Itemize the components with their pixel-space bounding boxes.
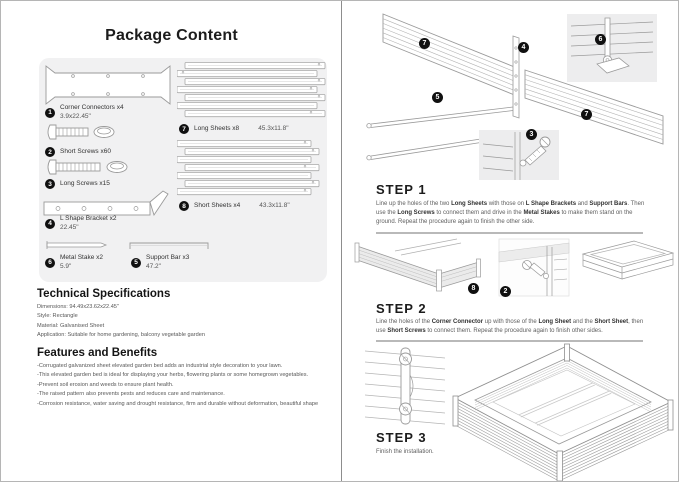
item-label: Support Bar x3 — [146, 254, 189, 263]
part-ref-badge: 3 — [526, 129, 537, 140]
item-label: L Shape Bracket x2 — [60, 215, 117, 224]
step1-assembly-illustration — [347, 4, 677, 180]
item-size: 5.9" — [60, 263, 103, 272]
spec-line: Style: Rectangle — [37, 312, 205, 321]
manual-page: Package Content 1 Corner Connectors x4 3… — [0, 0, 679, 482]
item-size: 3.9x22.45" — [60, 113, 124, 122]
short-sheets-illustration — [177, 140, 323, 197]
long-sheets-illustration — [177, 62, 327, 119]
step1-text: Line up the holes of the two Long Sheets… — [376, 200, 648, 227]
part-ref-badge: 8 — [468, 283, 479, 294]
step3-heading: STEP 3 — [376, 430, 427, 445]
item-number-badge: 4 — [45, 219, 55, 229]
item-number-badge: 8 — [179, 201, 189, 211]
section-divider — [376, 232, 643, 234]
corner-connector-illustration — [43, 64, 173, 106]
package-item: 5 Support Bar x3 47.2" — [131, 254, 189, 271]
step1-heading: STEP 1 — [376, 182, 427, 197]
long-screw-inset — [479, 130, 559, 180]
part-ref-badge: 7 — [419, 38, 430, 49]
package-item: 8 Short Sheets x4 43.3x11.8" — [179, 201, 290, 211]
package-content-box: 1 Corner Connectors x4 3.9x22.45" 2 Shor… — [39, 58, 327, 282]
specs-lines: Dimensions: 94.49x23.62x22.45" Style: Re… — [37, 303, 205, 341]
step2-assembly-illustration — [351, 238, 677, 298]
item-label: Metal Stake x2 — [60, 254, 103, 263]
spec-line: Application: Suitable for home gardening… — [37, 331, 205, 340]
item-label: Short Screws x60 — [60, 148, 111, 157]
item-size: 22.45" — [60, 224, 117, 233]
feature-line: -Corrugated galvanized sheet elevated ga… — [37, 362, 318, 371]
item-number-badge: 2 — [45, 147, 55, 157]
package-item: 3 Long Screws x15 — [45, 179, 110, 189]
part-ref-badge: 4 — [518, 42, 529, 53]
item-size: 45.3x11.8" — [258, 125, 288, 134]
step3-corner-detail — [363, 345, 447, 427]
item-number-badge: 3 — [45, 179, 55, 189]
part-ref-badge: 5 — [432, 92, 443, 103]
l-shape-bracket-illustration — [41, 190, 175, 218]
step2-text: Line the holes of the Corner Connector u… — [376, 318, 648, 336]
item-label: Long Screws x15 — [60, 180, 110, 189]
item-number-badge: 7 — [179, 124, 189, 134]
package-item: 2 Short Screws x60 — [45, 147, 111, 157]
support-bar-illustration — [127, 239, 211, 251]
feature-line: -Prevent soil erosion and weeds to ensur… — [37, 381, 318, 390]
feature-line: -This elevated garden bed is ideal for d… — [37, 371, 318, 380]
feature-line: -Corrosion resistance, water saving and … — [37, 400, 318, 409]
item-size: 47.2" — [146, 263, 189, 272]
short-screw-illustration — [45, 122, 119, 142]
package-item: 6 Metal Stake x2 5.9" — [45, 254, 103, 271]
features-heading: Features and Benefits — [37, 347, 157, 359]
metal-stake-inset — [567, 14, 657, 82]
spec-line: Dimensions: 94.49x23.62x22.45" — [37, 303, 205, 312]
step2-heading: STEP 2 — [376, 301, 427, 316]
finished-garden-bed-illustration — [449, 338, 677, 481]
package-item: 1 Corner Connectors x4 3.9x22.45" — [45, 104, 124, 121]
center-divider — [341, 1, 342, 481]
item-number-badge: 1 — [45, 108, 55, 118]
feature-line: -The raised pattern also prevents pests … — [37, 390, 318, 399]
part-ref-badge: 2 — [500, 286, 511, 297]
item-number-badge: 5 — [131, 258, 141, 268]
features-lines: -Corrugated galvanized sheet elevated ga… — [37, 362, 318, 409]
metal-stake-illustration — [43, 240, 109, 250]
item-label: Long Sheets x8 — [194, 125, 239, 134]
item-number-badge: 6 — [45, 258, 55, 268]
item-size: 43.3x11.8" — [259, 202, 289, 211]
package-item: 7 Long Sheets x8 45.3x11.8" — [179, 124, 289, 134]
item-label: Corner Connectors x4 — [60, 104, 124, 113]
page-title: Package Content — [1, 27, 342, 45]
part-ref-badge: 6 — [595, 34, 606, 45]
long-screw-illustration — [45, 157, 133, 177]
specs-heading: Technical Specifications — [37, 288, 170, 300]
part-ref-badge: 7 — [581, 109, 592, 120]
assembled-frame — [583, 241, 673, 279]
spec-line: Material: Galvanised Sheet — [37, 322, 205, 331]
package-item: 4 L Shape Bracket x2 22.45" — [45, 215, 117, 232]
step3-text: Finish the installation. — [376, 448, 648, 457]
item-label: Short Sheets x4 — [194, 202, 240, 211]
